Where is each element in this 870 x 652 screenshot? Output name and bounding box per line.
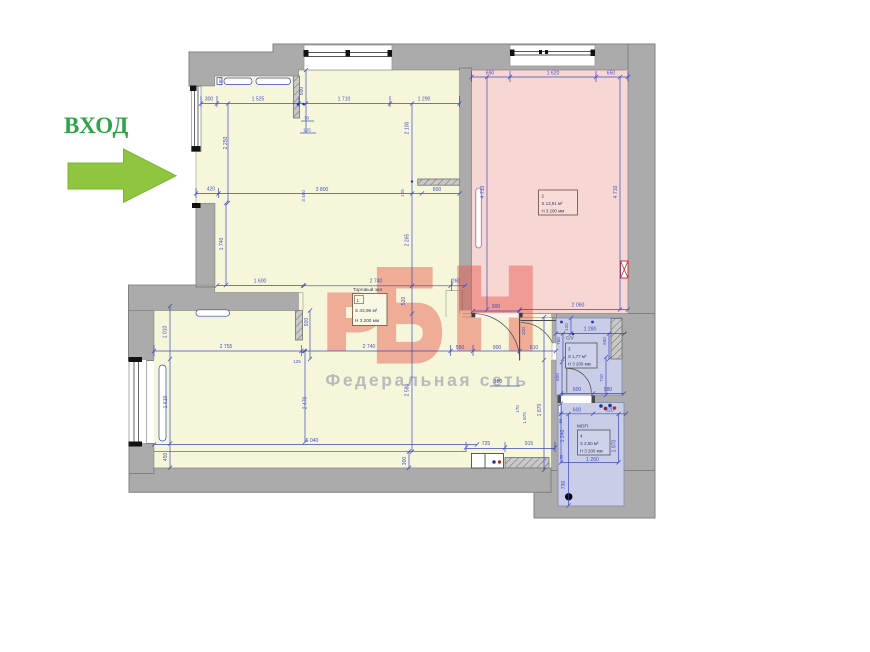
svg-text:1 870: 1 870	[522, 412, 527, 424]
svg-text:300: 300	[205, 97, 214, 103]
svg-text:3 800: 3 800	[316, 187, 329, 193]
svg-text:550: 550	[456, 345, 465, 351]
svg-text:725: 725	[482, 441, 491, 447]
svg-text:800: 800	[602, 337, 607, 345]
svg-text:1 970: 1 970	[612, 439, 618, 452]
svg-text:800: 800	[433, 187, 442, 193]
svg-text:1 610: 1 610	[163, 395, 169, 408]
svg-text:4 710: 4 710	[480, 185, 486, 198]
svg-text:900: 900	[493, 345, 502, 351]
svg-text:2 580: 2 580	[405, 383, 411, 396]
svg-text:170: 170	[515, 405, 520, 413]
svg-text:580: 580	[604, 387, 613, 393]
svg-text:1 620: 1 620	[547, 71, 560, 77]
svg-text:920: 920	[304, 318, 310, 327]
svg-text:S 2,50 м²: S 2,50 м²	[580, 441, 599, 446]
svg-text:4 710: 4 710	[613, 185, 619, 198]
svg-text:600: 600	[573, 387, 582, 393]
svg-text:420: 420	[207, 187, 216, 193]
svg-text:520: 520	[401, 297, 407, 306]
svg-text:1 240: 1 240	[560, 429, 566, 442]
svg-text:760: 760	[556, 337, 561, 345]
svg-text:600: 600	[555, 373, 560, 381]
svg-text:2 740: 2 740	[363, 344, 376, 350]
svg-text:2 470: 2 470	[303, 396, 309, 409]
svg-text:710: 710	[599, 374, 604, 382]
svg-text:ВХОД: ВХОД	[64, 113, 129, 138]
svg-text:650: 650	[607, 71, 616, 77]
svg-text:1: 1	[357, 298, 360, 303]
svg-text:1 740: 1 740	[219, 237, 225, 250]
svg-text:S 43,96 м²: S 43,96 м²	[355, 308, 378, 313]
svg-text:1 290: 1 290	[418, 97, 431, 103]
svg-text:70: 70	[304, 116, 310, 121]
svg-text:125: 125	[293, 359, 301, 364]
svg-text:900: 900	[492, 304, 501, 310]
svg-text:3 480: 3 480	[301, 190, 306, 202]
svg-text:180: 180	[494, 379, 503, 385]
svg-text:2 740: 2 740	[370, 279, 383, 285]
svg-text:450: 450	[163, 453, 169, 462]
svg-text:125: 125	[400, 189, 405, 197]
svg-text:МОП: МОП	[577, 424, 588, 429]
svg-text:С/У: С/У	[566, 336, 574, 341]
svg-text:120: 120	[564, 323, 569, 331]
svg-text:1 260: 1 260	[586, 457, 599, 463]
svg-text:1 280: 1 280	[584, 327, 597, 333]
svg-text:620: 620	[605, 408, 614, 414]
svg-text:300: 300	[402, 457, 408, 466]
svg-text:H 3 200 мм: H 3 200 мм	[542, 209, 565, 214]
svg-text:2 265: 2 265	[405, 233, 411, 246]
svg-text:H 3 200 мм: H 3 200 мм	[355, 318, 379, 323]
svg-text:1 600: 1 600	[254, 279, 267, 285]
svg-text:H 3 200 мм: H 3 200 мм	[568, 362, 591, 367]
svg-text:690: 690	[486, 71, 495, 77]
svg-text:S 1,77 м²: S 1,77 м²	[568, 354, 587, 359]
svg-text:730: 730	[561, 481, 567, 490]
svg-text:2 250: 2 250	[223, 136, 229, 149]
svg-text:Торговый зал: Торговый зал	[353, 286, 382, 292]
svg-text:2 755: 2 755	[220, 344, 233, 350]
svg-text:2 100: 2 100	[405, 121, 411, 134]
svg-text:125: 125	[303, 128, 311, 133]
svg-text:320: 320	[521, 327, 526, 335]
svg-text:610: 610	[530, 345, 539, 351]
svg-text:55: 55	[558, 418, 563, 423]
svg-text:1 525: 1 525	[252, 97, 265, 103]
svg-text:35: 35	[559, 454, 564, 459]
svg-text:1 010: 1 010	[163, 325, 169, 338]
svg-text:1 870: 1 870	[537, 403, 543, 416]
svg-text:180: 180	[218, 78, 223, 86]
svg-text:H 3 200 мм: H 3 200 мм	[580, 449, 603, 454]
svg-text:600: 600	[573, 408, 582, 414]
svg-text:600: 600	[299, 87, 305, 96]
svg-text:2 060: 2 060	[572, 303, 585, 309]
svg-text:1 710: 1 710	[338, 97, 351, 103]
svg-text:915: 915	[525, 441, 534, 447]
svg-text:S 13,91 м²: S 13,91 м²	[542, 201, 563, 206]
svg-text:6 040: 6 040	[306, 438, 319, 444]
svg-text:260: 260	[452, 279, 461, 285]
